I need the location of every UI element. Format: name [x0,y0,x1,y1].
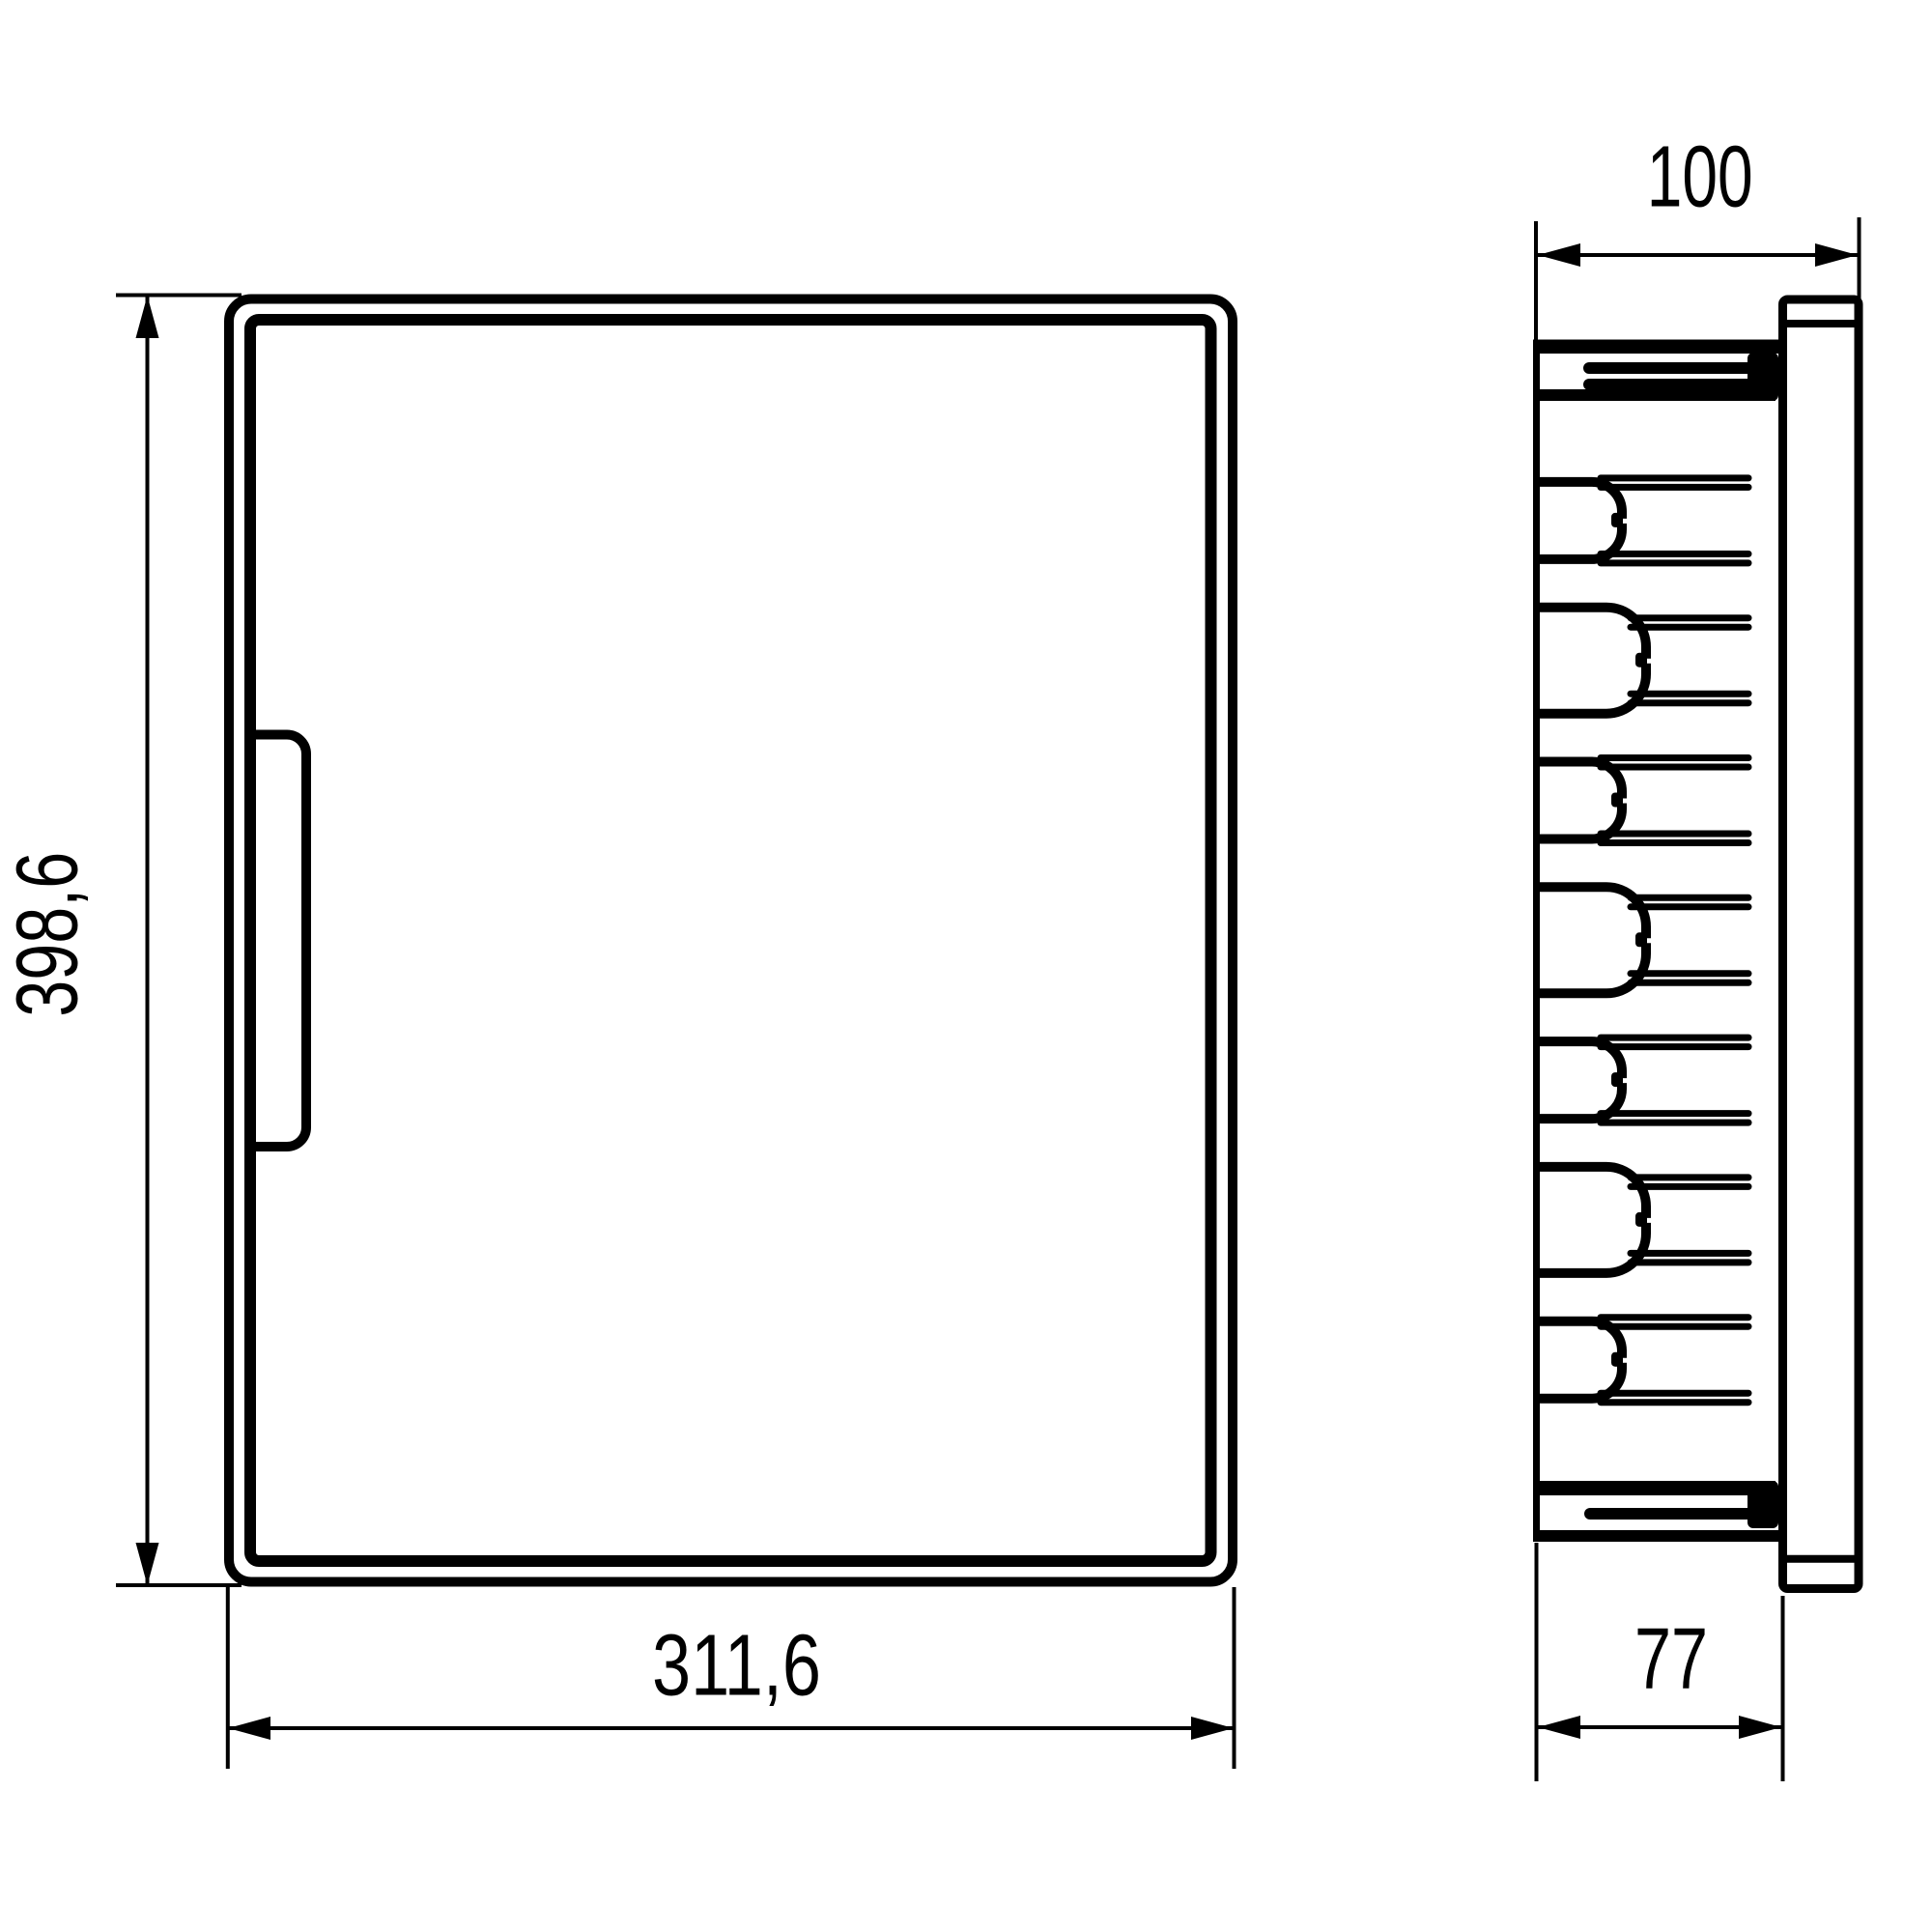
svg-text:100: 100 [1647,129,1753,226]
svg-text:311,6: 311,6 [652,1618,821,1715]
svg-text:77: 77 [1634,1611,1708,1708]
svg-text:398,6: 398,6 [0,852,97,1017]
